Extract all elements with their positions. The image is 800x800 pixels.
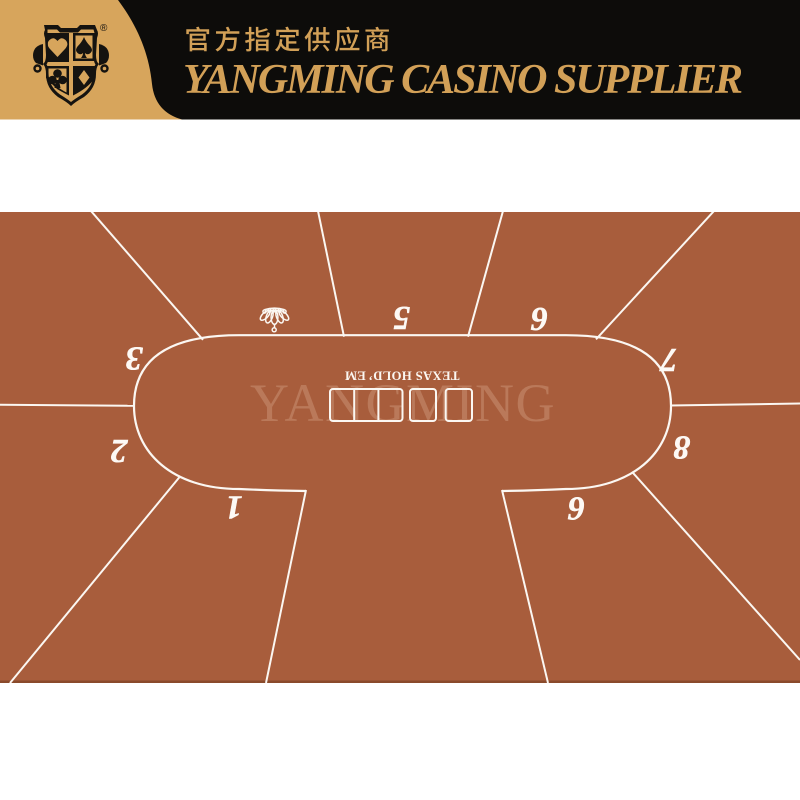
svg-text:3: 3 [126,339,144,376]
svg-text:YANGMING CASINO SUPPLIER: YANGMING CASINO SUPPLIER [183,57,742,103]
svg-text:TEXAS HOLD’ EM: TEXAS HOLD’ EM [345,369,460,383]
svg-text:®: ® [100,23,108,34]
svg-text:8: 8 [674,428,691,465]
svg-text:5: 5 [393,299,410,336]
svg-text:1: 1 [226,488,243,525]
svg-text:2: 2 [111,432,129,469]
svg-text:7: 7 [659,341,678,378]
svg-text:6: 6 [568,489,585,526]
svg-text:6: 6 [531,300,548,337]
